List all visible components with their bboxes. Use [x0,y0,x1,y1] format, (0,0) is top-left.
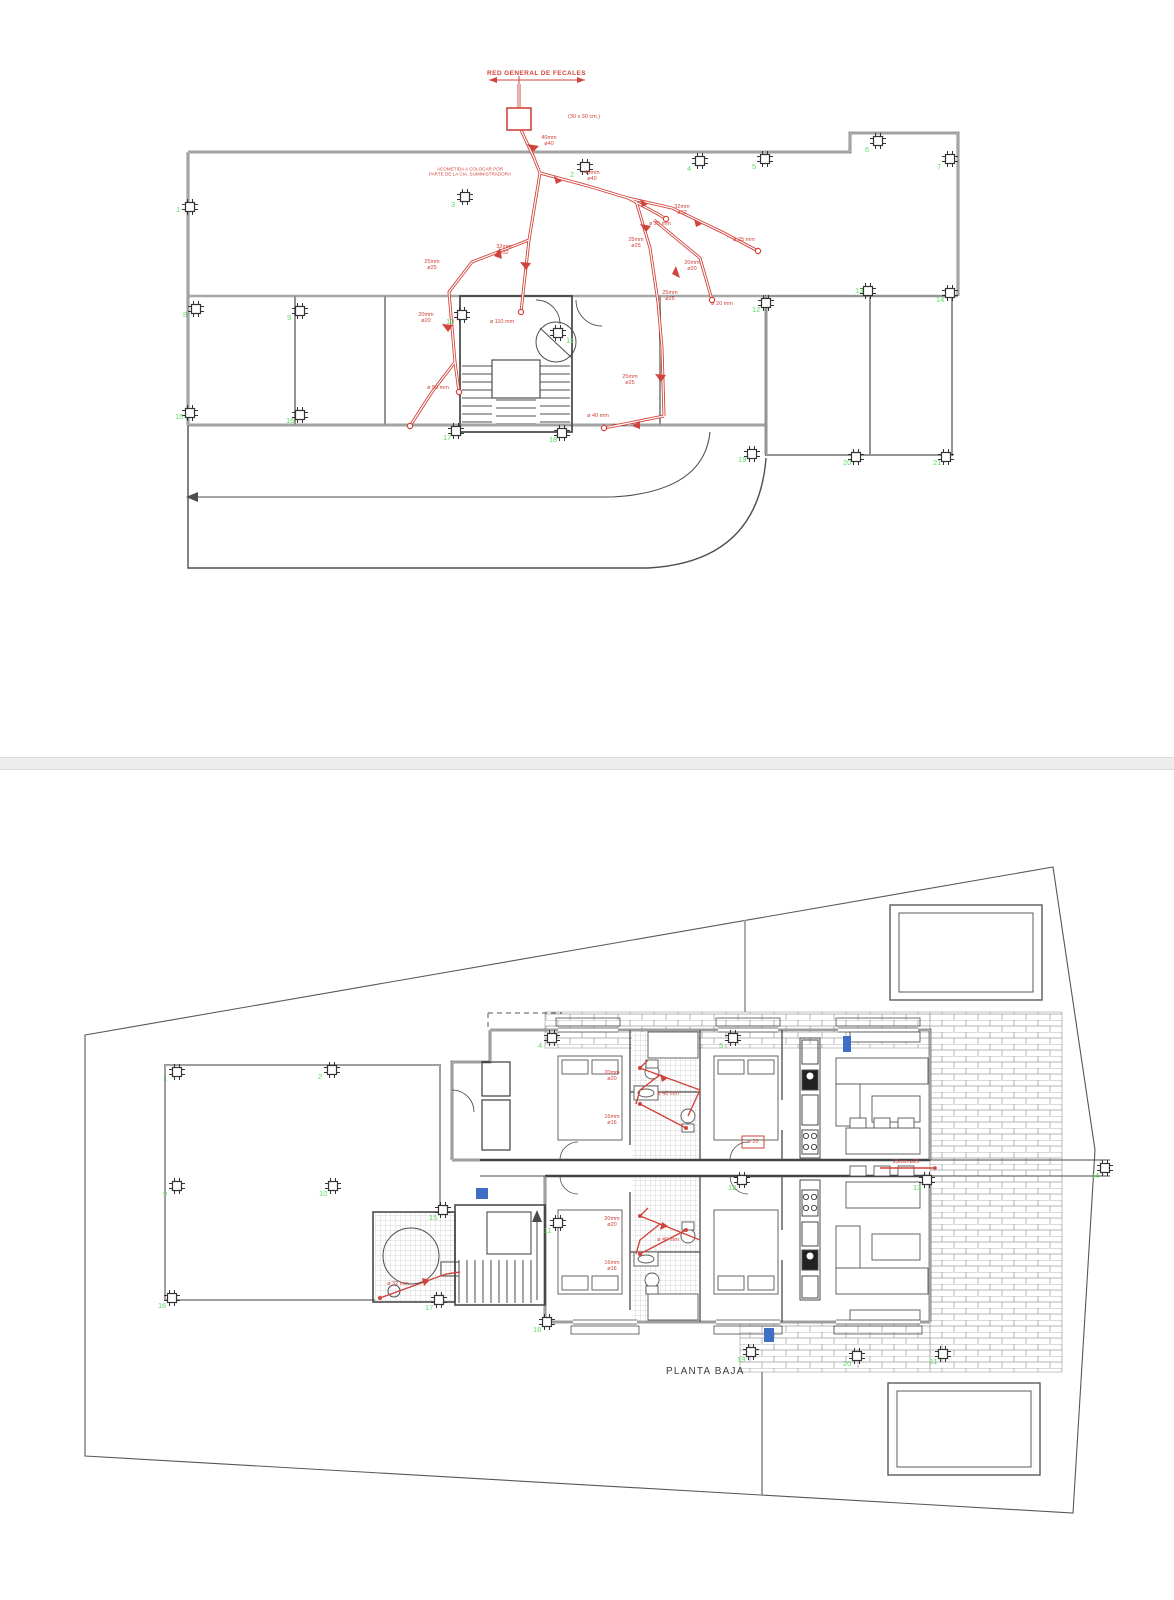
roof-plan-drawing [0,0,1174,757]
stair-core [460,296,602,432]
bed [558,1056,622,1140]
floor-plan-drawing [0,770,1174,1600]
roof-column-markers [182,133,958,465]
bed [714,1056,778,1140]
driveway-ramp [186,425,766,568]
dining-table [846,1182,920,1208]
title-arrow-line [489,76,585,84]
water-meter-box [507,108,531,130]
pergola-grid [766,296,952,455]
living-room-furniture [836,1032,928,1320]
dining-table [846,1128,920,1154]
sofa [836,1268,928,1294]
kitchen-units [800,1038,820,1300]
ground-floor-page: PLANTA BAJA 20mm ø20 ø 40 mm 16mm ø16 20… [0,770,1174,1600]
page-separator [0,757,1174,770]
coffee-table [872,1234,920,1260]
blueprint-document: { "colors": { "pipe_red": "#d0443c", "ma… [0,0,1174,1600]
sofa [836,1226,860,1268]
bed [714,1210,778,1294]
sofa [836,1058,928,1084]
pool-top [890,905,1042,1000]
pool-bottom [888,1383,1040,1475]
tv-bench [850,1310,920,1320]
tv-bench [850,1032,920,1042]
bed [558,1210,622,1294]
brick-terrace [545,1012,1062,1372]
roof-plan-page: RED GENERAL DE FECALES (30 x 30 cm.) ACO… [0,0,1174,757]
